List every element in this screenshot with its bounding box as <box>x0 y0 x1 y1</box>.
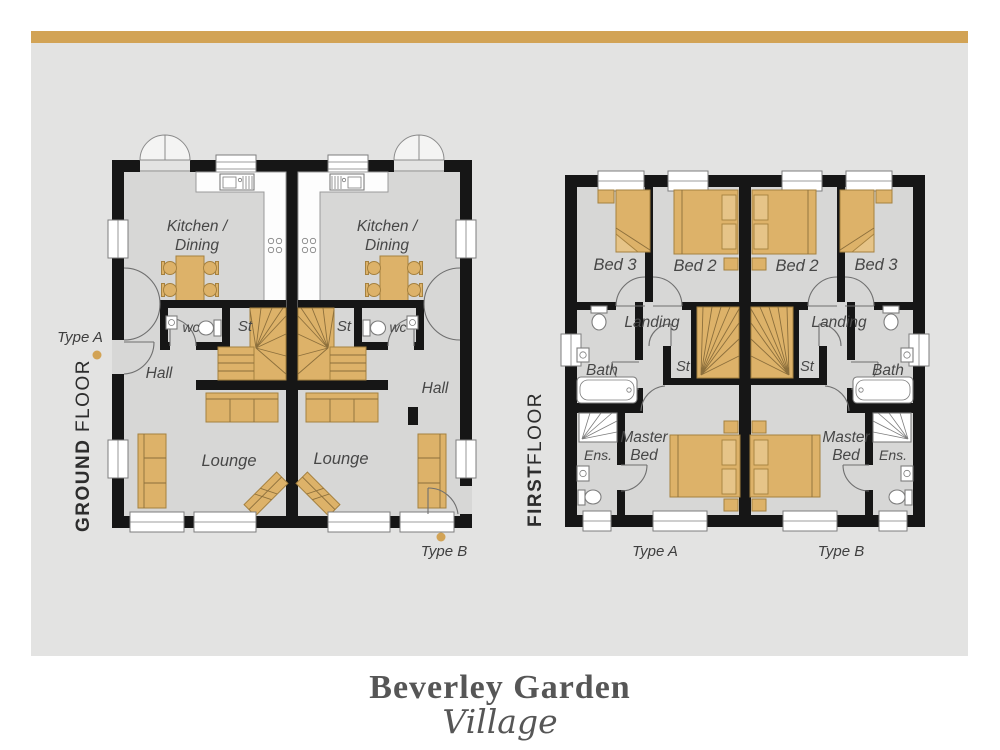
room-label-store-first-a: St <box>676 359 691 375</box>
accent-gold-bar <box>31 31 968 43</box>
room-label-wc-b: wc <box>389 319 406 335</box>
room-label-ensuite-a: Ens. <box>584 447 612 463</box>
room-label-kitchen-a-line2: Dining <box>175 237 219 254</box>
room-label-bed2-b: Bed 2 <box>775 257 818 275</box>
brochure-page: Kitchen / Dining Kitchen / Dining wc wc … <box>0 0 1000 750</box>
first-floor-plan: Bed 3 Bed 2 Bed 2 Bed 3 Landing Landing … <box>525 171 929 560</box>
room-label-ensuite-b: Ens. <box>879 447 907 463</box>
first-floor-title: FIRST FLOOR <box>525 392 546 527</box>
room-label-store-a: St <box>238 318 253 335</box>
ground-floor-title-primary: GROUND <box>73 439 94 532</box>
room-label-kitchen-b-line1: Kitchen / <box>357 218 419 235</box>
room-label-master-a-line2: Bed <box>630 447 659 464</box>
type-b-gold-dot <box>437 533 446 542</box>
room-label-kitchen-a-line1: Kitchen / <box>167 218 229 235</box>
room-label-landing-a: Landing <box>624 314 680 331</box>
type-a-gold-dot <box>93 351 102 360</box>
ground-floor-plan: Kitchen / Dining Kitchen / Dining wc wc … <box>57 135 476 560</box>
first-floor-title-secondary: FLOOR <box>525 392 546 465</box>
room-label-store-first-b: St <box>800 359 815 375</box>
first-unit-b <box>750 171 929 531</box>
room-label-master-a-line1: Master <box>620 429 668 446</box>
room-label-bed2-a: Bed 2 <box>673 257 716 275</box>
ground-type-b-label: Type B <box>421 543 467 560</box>
room-label-store-b: St <box>337 318 352 335</box>
room-label-hall-b: Hall <box>422 380 449 397</box>
ground-unit-b <box>296 135 476 532</box>
room-label-hall-a: Hall <box>146 365 173 382</box>
brand-name-main: Beverley Garden <box>369 669 630 706</box>
first-unit-a <box>561 171 740 531</box>
first-type-b-label: Type B <box>818 543 864 560</box>
room-label-master-b-line2: Bed <box>832 447 861 464</box>
room-label-wc-a: wc <box>182 319 199 335</box>
room-label-bath-a: Bath <box>586 362 618 379</box>
first-floor-title-primary: FIRST <box>525 465 546 527</box>
room-label-bed3-b: Bed 3 <box>854 256 898 274</box>
ground-floor-title-secondary: FLOOR <box>73 359 94 432</box>
room-label-lounge-a: Lounge <box>201 452 256 470</box>
ground-type-a-label: Type A <box>57 329 103 346</box>
room-label-landing-b: Landing <box>811 314 867 331</box>
brand-name-script: Village <box>442 702 557 741</box>
room-label-bath-b: Bath <box>872 362 904 379</box>
room-label-bed3-a: Bed 3 <box>593 256 637 274</box>
ground-floor-title: GROUND FLOOR <box>73 359 94 532</box>
first-type-a-label: Type A <box>632 543 678 560</box>
floorplan-canvas: Kitchen / Dining Kitchen / Dining wc wc … <box>0 0 1000 750</box>
room-label-kitchen-b-line2: Dining <box>365 237 409 254</box>
room-label-lounge-b: Lounge <box>313 450 368 468</box>
room-label-master-b-line1: Master <box>822 429 870 446</box>
